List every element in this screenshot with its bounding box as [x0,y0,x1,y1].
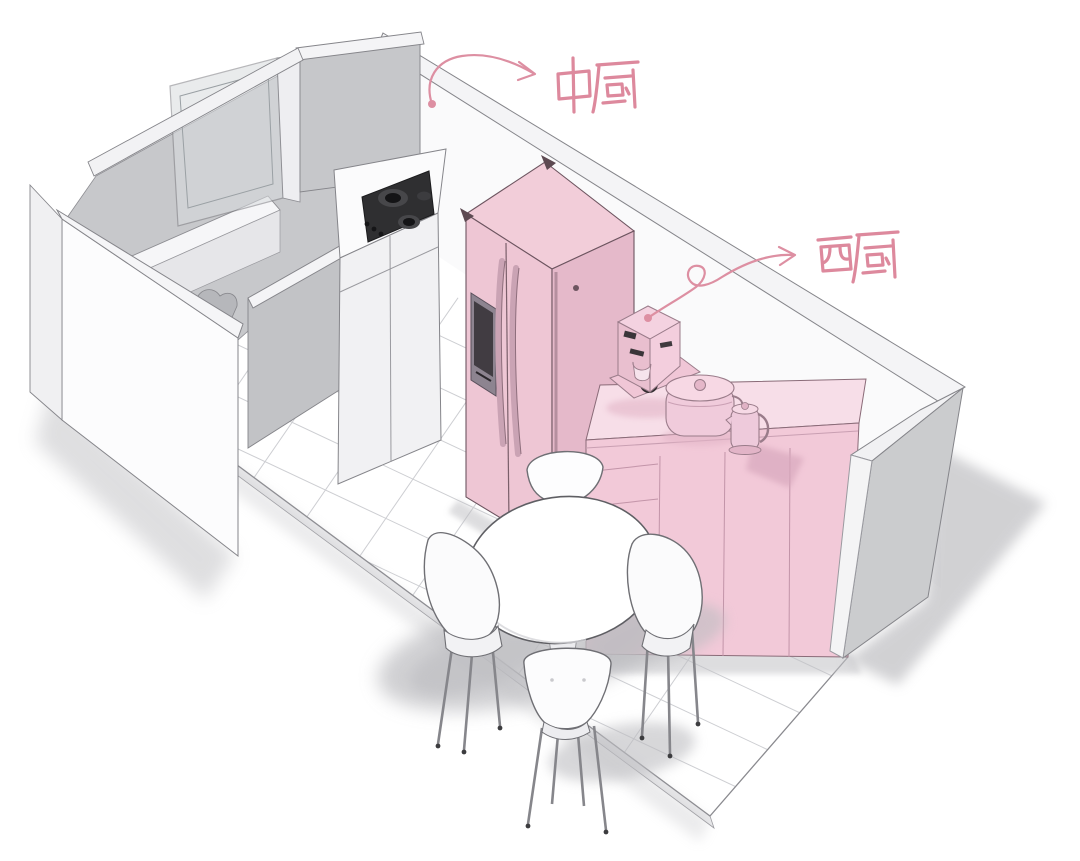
label-chinese-kitchen: 中厨 [552,56,644,111]
fridge-side-dot [573,285,579,291]
stove-base-cabinet [334,149,446,484]
rice-cooker [662,375,742,446]
chair-foot [668,754,673,759]
burner-small [417,192,431,201]
cooktop-knob [372,227,377,232]
chair-foot [526,824,531,829]
leader-arrowhead [518,62,535,80]
chair-foot [640,736,645,741]
chair-foot [498,726,503,731]
chair-foot [436,744,441,749]
cooktop-knob [365,222,370,227]
rice-cooker-knob [695,380,706,391]
kettle-base [729,446,761,455]
cooktop-knob [379,232,384,237]
kitchen-3d-scene [0,0,1080,861]
kitchen-rendering: 中厨 西厨 [0,0,1080,861]
chair-cap-screw [550,678,554,682]
chair-foot [462,750,467,755]
stove-counter-front [338,213,441,484]
chair-cap-screw [582,678,586,682]
water-dispenser [471,293,496,396]
kettle-lid-knob [742,403,749,410]
chair-foot [696,722,701,727]
room-left-end-face [30,185,62,420]
label-western-kitchen: 西厨 [814,230,906,285]
chair-foot [604,830,609,835]
